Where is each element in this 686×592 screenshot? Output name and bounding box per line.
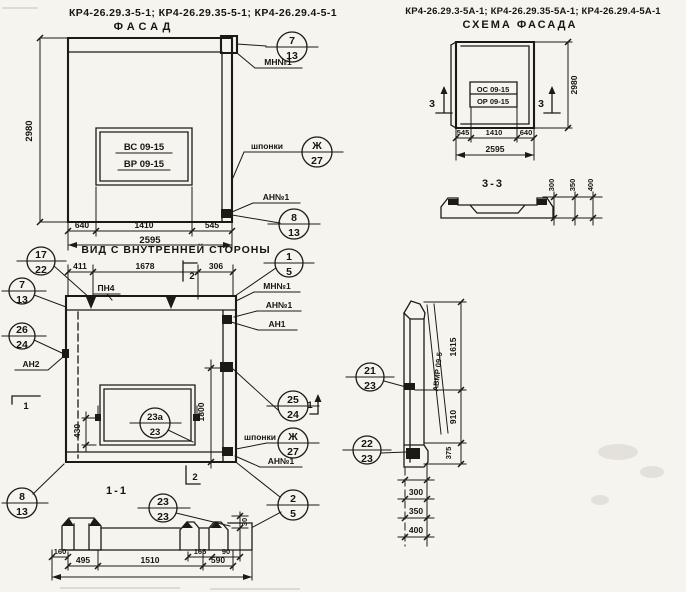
- balloon-bottom: 13: [286, 50, 298, 62]
- scheme-sec3-right-label: 3: [538, 98, 544, 110]
- facade-window-mark-bottom: ВР 09-15: [124, 159, 165, 170]
- sec33-dim-400: 400: [586, 179, 595, 192]
- profile-top-hook: [404, 301, 425, 319]
- inner-sec2-top-label: 2: [189, 271, 194, 282]
- section-3-3: 300 350 400: [441, 179, 602, 225]
- callout-balloon-17-22: 17 22: [17, 247, 66, 276]
- inner-label-shponki: шпонки: [244, 432, 276, 442]
- balloon-top: 1: [286, 251, 292, 263]
- balloon-top: 23а: [147, 412, 164, 423]
- profile-dim-910: 910: [448, 410, 458, 424]
- scheme-sec3-left-arrow: [441, 86, 448, 94]
- balloon-bottom: 5: [290, 508, 296, 520]
- balloon-top: 23: [157, 496, 169, 508]
- balloon-top: Ж: [311, 140, 322, 152]
- balloon-midline: [346, 377, 406, 387]
- facade-dim-1410: 1410: [135, 220, 154, 230]
- sec11-slab-lines: [62, 523, 252, 550]
- sec11-dim-495: 495: [76, 555, 90, 565]
- inner-label-an1: АН1: [268, 319, 285, 329]
- scan-artifacts: [2, 8, 664, 589]
- sec11-dim-30: 30: [240, 518, 249, 526]
- title-section-1-1: 1-1: [106, 485, 128, 497]
- drawing-canvas: КР4-26.29.3-5-1; КР4-26.29.35-5-1; КР4-2…: [0, 0, 686, 592]
- inner-sec2-bottom-label: 2: [192, 472, 197, 483]
- balloon-bottom: 22: [35, 264, 47, 276]
- inner-sec1-right-label: 1: [307, 400, 313, 411]
- scan-smudge: [591, 495, 609, 505]
- profile-embedded-plates: [404, 383, 420, 459]
- scan-smudge: [640, 466, 664, 478]
- sec11-dim-590: 590: [211, 555, 225, 565]
- scheme-sec3-left-label: 3: [429, 98, 435, 110]
- balloon-bottom: 23: [361, 453, 373, 465]
- inner-label-mn1: МН№1: [263, 281, 291, 291]
- inner-label-pn4: ПН4: [98, 283, 115, 293]
- balloon-bottom: 13: [288, 227, 300, 239]
- callout-balloon-23a-23: 23а 23: [130, 408, 193, 442]
- scheme-dim-545: 545: [457, 128, 470, 137]
- inner-dim-1800: 1800: [196, 402, 206, 421]
- sec33-dim-350: 350: [568, 179, 577, 192]
- inner-dim-1678: 1678: [136, 261, 155, 271]
- sec11-dim-165: 165: [194, 547, 207, 556]
- callout-balloon-shponki: Ж 27: [291, 137, 343, 167]
- balloon-top: 7: [289, 35, 295, 47]
- balloon-top: 8: [19, 491, 25, 503]
- inner-view: 411 1678 306 2 2 ПН4 23а 23 430 1800: [2, 247, 322, 527]
- facade-window-opening: [96, 128, 192, 185]
- scheme-dim-1410: 1410: [486, 128, 503, 137]
- inner-label-an-no1: АН№1: [266, 300, 293, 310]
- profile-stack-300: 300: [409, 487, 423, 497]
- inner-sec1-right-arrow: [315, 394, 322, 402]
- balloon-top: 25: [287, 394, 299, 406]
- facade-label-shponki: шпонки: [251, 141, 283, 151]
- facade-window-mark-top: ВС 09-15: [124, 142, 165, 153]
- profile-dim-1615: 1615: [448, 337, 458, 356]
- sec33-profile-tabs: [448, 199, 547, 205]
- balloon-top: 22: [361, 438, 373, 450]
- balloon-top: 17: [35, 249, 47, 261]
- facade-dim-total: 2595: [139, 235, 161, 246]
- balloon-top: 8: [291, 212, 297, 224]
- profile-dim-375: 375: [444, 447, 453, 460]
- balloon-top: Ж: [287, 431, 298, 443]
- balloon-top: 7: [19, 279, 25, 291]
- section-1-1: 23 23 30 160 165 90 495 1510 590: [49, 494, 252, 580]
- balloon-top: 21: [364, 365, 376, 377]
- sec33-dim-ticks: [551, 194, 596, 221]
- balloon-bottom: 27: [311, 155, 323, 167]
- balloon-bottom: 23: [157, 511, 169, 523]
- inner-dim430-lines: [82, 412, 96, 451]
- profile-stack-350: 350: [409, 506, 423, 516]
- profile-stack-400: 400: [409, 525, 423, 535]
- balloon-bottom: 24: [16, 339, 28, 351]
- callout-balloon-7-13b: 7 13: [2, 278, 46, 306]
- balloon-midline: [130, 423, 193, 442]
- callout-balloon-8-13: 8 13: [268, 209, 320, 239]
- balloon-bottom: 23: [364, 380, 376, 392]
- facade-embedded-plate: [221, 209, 232, 218]
- scheme-window-mark-bottom: ОР 09-15: [477, 97, 509, 106]
- title-section-3-3: 3-3: [482, 178, 504, 190]
- inner-label-an2: АН2: [22, 359, 39, 369]
- inner-dim-411: 411: [73, 261, 87, 271]
- scan-smudge: [598, 444, 638, 460]
- facade-panel-outline: [68, 38, 232, 222]
- scheme-window-mark-top: ОС 09-15: [477, 85, 510, 94]
- balloon-bottom: 27: [287, 446, 299, 458]
- scheme-height-dim-lines: [534, 42, 572, 128]
- sec11-right-rib-tabs: [181, 521, 222, 528]
- title-scheme: СХЕМА ФАСАДА: [463, 19, 578, 31]
- inner-sec1-left-label: 1: [23, 401, 29, 412]
- callout-balloon-26-24: 26 24: [2, 323, 46, 351]
- title-facade: ФАСАД: [114, 21, 175, 33]
- balloon-bottom: 5: [286, 266, 292, 278]
- scheme-dim-640: 640: [520, 128, 533, 137]
- title-right-codes: КР4-26.29.3-5А-1; КР4-26.29.35-5А-1; КР4…: [405, 6, 661, 17]
- facade-height-dim: 2980: [24, 120, 35, 141]
- sec11-dim-160: 160: [54, 547, 67, 556]
- facade-label-an1: АН№1: [263, 192, 290, 202]
- facade-height-dim-lines: [40, 38, 68, 222]
- balloon-bottom: 24: [287, 409, 299, 421]
- facade-panel-inner-lines: [68, 52, 222, 222]
- facade-dim-545: 545: [205, 220, 219, 230]
- inner-dim-306: 306: [209, 261, 223, 271]
- scheme-height-dim: 2980: [569, 75, 579, 94]
- callout-balloon-8-13b: 8 13: [2, 488, 48, 518]
- scheme-sec3-right-arrow: [549, 86, 556, 94]
- scheme-view: ОС 09-15 ОР 09-15 3 3 2980 545 1410 640 …: [429, 39, 579, 160]
- balloon-bottom: 13: [16, 294, 28, 306]
- facade-view: ВС 09-15 ВР 09-15 2980 640 1410 545 2595…: [24, 32, 343, 250]
- callout-balloon-23-23: 23 23: [138, 494, 230, 526]
- callout-balloon-1-5: 1 5: [264, 249, 314, 278]
- facade-dim-640: 640: [75, 220, 89, 230]
- balloon-top: 2: [290, 493, 296, 505]
- balloon-top: 26: [16, 324, 28, 336]
- sec33-dim-300: 300: [547, 179, 556, 192]
- title-left-codes: КР4-26.29.3-5-1; КР4-26.29.35-5-1; КР4-2…: [69, 7, 337, 19]
- scanned-drawing-sheet: КР4-26.29.3-5-1; КР4-26.29.35-5-1; КР4-2…: [0, 0, 686, 592]
- inner-dim-430: 430: [72, 424, 82, 438]
- inner-left-leaders: [33, 266, 91, 494]
- sec11-dim-1510: 1510: [141, 555, 160, 565]
- side-profile-view: АВМР 09-5 1615 910 375 21 23 22 23 300 3…: [343, 299, 466, 546]
- balloon-bottom: 23: [150, 427, 161, 438]
- callout-balloon-21-23: 21 23: [346, 363, 406, 392]
- scheme-dim-total: 2595: [486, 144, 505, 154]
- inner-top-notches: [86, 297, 176, 309]
- callout-balloon-22-23: 22 23: [343, 436, 406, 465]
- balloon-bottom: 13: [16, 506, 28, 518]
